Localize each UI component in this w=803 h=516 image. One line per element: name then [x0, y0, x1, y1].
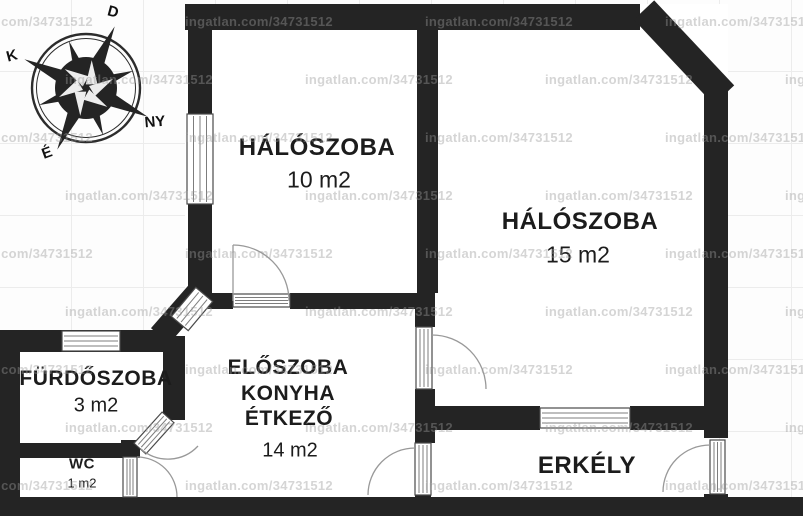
wall-right — [704, 86, 728, 438]
wall-left-bedroom-upper — [188, 4, 212, 114]
wall-center-mid — [415, 293, 435, 327]
wall-bathroom-wc-divider — [0, 443, 122, 458]
wall-balcony-right-stub — [704, 494, 728, 499]
wall-left-outer — [0, 330, 20, 516]
window-bathroom-top — [62, 331, 120, 351]
wall-bedroom-bottom-right — [290, 293, 420, 309]
compass-rose — [0, 0, 176, 178]
floorplan-drawing — [0, 0, 803, 516]
wall-room15-bottom-left — [418, 406, 540, 430]
window-room15-balcony — [540, 408, 630, 428]
wall-top — [185, 4, 640, 30]
wall-center-upper — [417, 4, 438, 293]
wall-below-balcony-door — [415, 495, 431, 499]
wall-room15-bottom-right — [630, 406, 728, 430]
floorplan-canvas: D K NY É HÁLÓSZOBA 10 m2 HÁLÓSZOBA 15 m2… — [0, 0, 803, 516]
wall-left-bedroom-lower — [188, 204, 212, 294]
window-bedroom-small-left — [187, 114, 213, 204]
wall-bathroom-right — [163, 336, 185, 420]
wall-bottom — [0, 497, 803, 516]
